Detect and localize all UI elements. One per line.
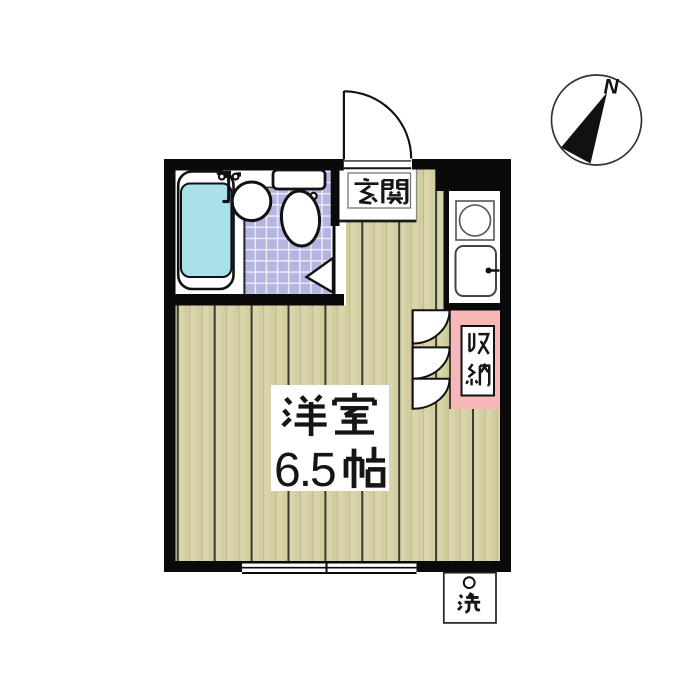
svg-text:6.5: 6.5 bbox=[274, 444, 335, 497]
svg-text:N: N bbox=[604, 76, 620, 99]
